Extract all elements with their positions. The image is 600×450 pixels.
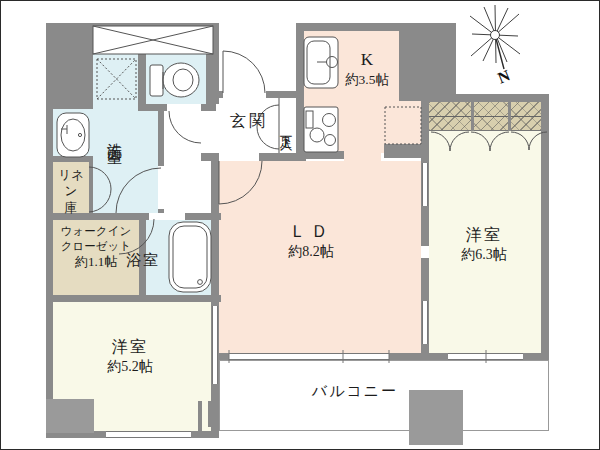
toilet-icon: [150, 63, 199, 97]
floorplan: N 洗面室 リネン 庫 ウォークイン クローゼット 約1.1帖 浴室 玄関 下足…: [0, 0, 600, 450]
bedroom-south-label: 洋室 約5.2帖: [69, 337, 191, 376]
bathroom-label: 浴室: [115, 251, 171, 271]
pocket-wall: [200, 401, 210, 433]
stove-icon: [304, 107, 338, 152]
linen-closet-label: リネン 庫: [53, 167, 89, 216]
ld-label: ＬＤ 約8.2帖: [251, 221, 371, 261]
void-box: [93, 26, 213, 54]
entrance-label: 玄関: [219, 111, 279, 132]
window-ticks: [229, 350, 486, 363]
shoe-cabinet-label: 下足入: [278, 100, 294, 155]
refrigerator-space: [385, 107, 421, 144]
kitchen-label: K 約3.5帖: [331, 49, 403, 89]
vanity-sink-icon: [57, 113, 89, 157]
compass-icon: [470, 5, 520, 69]
bedroom-east-label: 洋室 約6.3帖: [425, 225, 543, 264]
balcony-label: バルコニー: [299, 382, 411, 402]
bathtub-icon: [169, 222, 211, 292]
compass-north-label: N: [495, 66, 512, 86]
washing-machine-pan-icon: [97, 59, 136, 99]
washroom-label: 洗面室: [104, 97, 124, 173]
